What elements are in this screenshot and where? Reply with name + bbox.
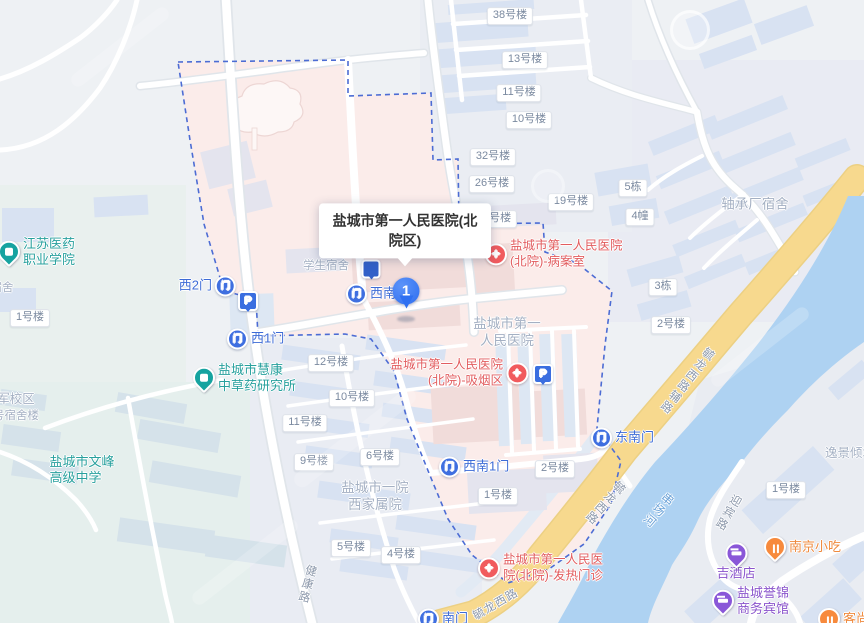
- building-label-13-text: 13号楼: [502, 51, 548, 69]
- building-label-5-text: 5号楼: [331, 539, 371, 557]
- building-label-2e-text: 2号楼: [651, 316, 691, 334]
- gate-west-2-text: 西2门: [179, 278, 212, 294]
- military-campus-label-text: 军校区: [0, 392, 35, 408]
- student-dorm-label-text: 学生宿舍: [303, 259, 349, 273]
- building-label-32-text: 32号楼: [470, 148, 516, 166]
- yujin-business-hotel-text: 盐城誉锦商务宾馆: [737, 585, 789, 618]
- dorm-building-label: 号宿舍楼: [0, 409, 39, 423]
- gate-southwest-1-text: 西南1门: [463, 459, 509, 475]
- building-label-26[interactable]: 26号楼: [469, 175, 515, 193]
- military-campus-label: 军校区: [0, 392, 35, 408]
- building-label-4[interactable]: 4号楼: [381, 546, 421, 564]
- building-label-1h-text: 1号楼: [478, 487, 518, 505]
- hospital-smoking-area-text: 盐城市第一人民医院(北院)-吸烟区: [390, 357, 503, 388]
- building-label-2h[interactable]: 2号楼: [535, 460, 575, 478]
- bearing-factory-dorm-label-text: 轴承厂宿舍: [721, 197, 789, 214]
- jiangsu-medical-college[interactable]: 江苏医药职业学院: [0, 236, 75, 269]
- building-label-d5-text: 5栋: [618, 179, 647, 197]
- gate-icon[interactable]: 门: [418, 609, 439, 623]
- hospital-smoking-area[interactable]: +盐城市第一人民医院(北院)-吸烟区: [390, 357, 528, 388]
- building-label-10n[interactable]: 10号楼: [506, 111, 552, 129]
- building-label-9-text: 9号楼: [294, 453, 334, 471]
- building-label-19[interactable]: 19号楼: [548, 193, 594, 211]
- parking-west[interactable]: P: [238, 291, 258, 311]
- food-icon[interactable]: [759, 531, 790, 562]
- building-label-6-text: 6号楼: [360, 448, 400, 466]
- wenfeng-high-school[interactable]: 盐城市文峰高级中学: [49, 454, 114, 487]
- hosp-icon[interactable]: +: [478, 557, 500, 579]
- huikang-herbal-institute-text: 盐城市慧康中草药研究所: [218, 362, 296, 395]
- building-label-11w[interactable]: 11号楼: [282, 414, 327, 432]
- building-label-26-text: 26号楼: [469, 175, 515, 193]
- building-label-11w-text: 11号楼: [282, 414, 327, 432]
- edu-icon[interactable]: [0, 236, 25, 267]
- hospital-records-room-text: 盐城市第一人民医院(北院)-病案室: [510, 238, 623, 269]
- building-label-9[interactable]: 9号楼: [294, 453, 334, 471]
- building-label-6[interactable]: 6号楼: [360, 448, 400, 466]
- map-canvas[interactable]: 38号楼13号楼11号楼10号楼32号楼26号楼18号楼19号楼5栋4幢3栋2号…: [0, 0, 864, 623]
- building-label-10w[interactable]: 10号楼: [329, 389, 375, 407]
- gate-west-2[interactable]: 门西2门: [179, 276, 236, 297]
- hospital-area-label: 盐城市第一人民医院: [473, 316, 541, 350]
- building-label-1se[interactable]: 1号楼: [766, 481, 806, 499]
- gate-southeast[interactable]: 门东南门: [591, 428, 654, 449]
- map-base-layer: [0, 0, 864, 623]
- gate-south-partial-text: 南门: [442, 611, 468, 623]
- building-label-1w[interactable]: 1号楼: [10, 309, 50, 327]
- building-label-19-text: 19号楼: [548, 193, 594, 211]
- hospital-area-label-text: 盐城市第一人民医院: [473, 316, 541, 350]
- building-label-d3-text: 3栋: [648, 278, 677, 296]
- building-label-10n-text: 10号楼: [506, 111, 552, 129]
- building-label-d3[interactable]: 3栋: [648, 278, 677, 296]
- hospital-fever-clinic[interactable]: +盐城市第一人民医院(北院)-发热门诊: [478, 552, 603, 583]
- gate-icon[interactable]: 门: [591, 428, 612, 449]
- building-label-4-text: 4号楼: [381, 546, 421, 564]
- gate-south-partial[interactable]: 门南门: [418, 609, 468, 623]
- keshang-partial-text: 客尚: [843, 611, 864, 623]
- hospital-fever-clinic-text: 盐城市第一人民医院(北院)-发热门诊: [503, 552, 603, 583]
- ji-hotel[interactable]: 吉酒店: [716, 542, 755, 581]
- marker-number: 1: [402, 283, 410, 300]
- dorm-label-edge-text: 宿舍: [0, 281, 14, 295]
- building-label-d5[interactable]: 5栋: [618, 179, 647, 197]
- hosp-icon[interactable]: +: [506, 362, 528, 384]
- gate-southwest-1[interactable]: 门西南1门: [439, 457, 509, 478]
- huikang-herbal-institute[interactable]: 盐城市慧康中草药研究所: [193, 362, 296, 395]
- park-icon[interactable]: P: [533, 364, 553, 384]
- staff-housing-label-text: 盐城市一院西家属院: [341, 480, 409, 514]
- bearing-factory-dorm-label: 轴承厂宿舍: [721, 197, 789, 214]
- nanjing-snacks-text: 南京小吃: [789, 539, 841, 555]
- pin-icon[interactable]: [362, 260, 381, 279]
- wenfeng-high-school-text: 盐城市文峰高级中学: [49, 454, 114, 487]
- gate-icon[interactable]: 门: [215, 276, 236, 297]
- building-label-2h-text: 2号楼: [535, 460, 575, 478]
- yujin-business-hotel[interactable]: 盐城誉锦商务宾馆: [712, 585, 789, 618]
- gate-icon[interactable]: 门: [346, 284, 367, 305]
- building-label-1h[interactable]: 1号楼: [478, 487, 518, 505]
- building-label-d4[interactable]: 4幢: [625, 208, 654, 226]
- hotel-icon[interactable]: [720, 538, 751, 569]
- hotel-icon[interactable]: [707, 585, 738, 616]
- building-label-12[interactable]: 12号楼: [308, 354, 354, 372]
- building-label-2e[interactable]: 2号楼: [651, 316, 691, 334]
- gate-icon[interactable]: 门: [227, 329, 248, 350]
- parking-hospital[interactable]: P: [533, 364, 553, 384]
- student-dorm-label: 学生宿舍: [303, 259, 349, 273]
- marker-shadow: [397, 316, 415, 322]
- edu-icon[interactable]: [188, 362, 219, 393]
- park-icon[interactable]: P: [238, 291, 258, 311]
- nanjing-snacks[interactable]: 南京小吃: [764, 536, 841, 558]
- dorm-label-edge: 宿舍: [0, 281, 14, 295]
- poi-pin-under-tooltip[interactable]: [362, 260, 381, 279]
- jiangsu-medical-college-text: 江苏医药职业学院: [23, 236, 75, 269]
- gate-west-1[interactable]: 门西1门: [227, 329, 284, 350]
- building-label-38-text: 38号楼: [487, 7, 533, 25]
- building-label-10w-text: 10号楼: [329, 389, 375, 407]
- staff-housing-label: 盐城市一院西家属院: [341, 480, 409, 514]
- info-window[interactable]: 盐城市第一人民医院(北院区): [319, 203, 491, 258]
- keshang-partial[interactable]: 客尚: [818, 608, 864, 623]
- building-label-38[interactable]: 38号楼: [487, 7, 533, 25]
- hospital-records-room[interactable]: +盐城市第一人民医院(北院)-病案室: [485, 238, 623, 269]
- yijing-compound-label-text: 逸景倾城: [825, 446, 864, 462]
- gate-southeast-text: 东南门: [615, 430, 654, 446]
- building-label-11n-text: 11号楼: [496, 84, 541, 102]
- gate-icon[interactable]: 门: [439, 457, 460, 478]
- building-label-1w-text: 1号楼: [10, 309, 50, 327]
- building-label-d4-text: 4幢: [625, 208, 654, 226]
- gate-west-1-text: 西1门: [251, 331, 284, 347]
- building-label-5[interactable]: 5号楼: [331, 539, 371, 557]
- dorm-building-label-text: 号宿舍楼: [0, 409, 39, 423]
- building-label-1se-text: 1号楼: [766, 481, 806, 499]
- building-label-11n[interactable]: 11号楼: [496, 84, 541, 102]
- building-label-32[interactable]: 32号楼: [470, 148, 516, 166]
- info-window-title: 盐城市第一人民医院(北院区): [333, 212, 478, 248]
- yijing-compound-label: 逸景倾城: [825, 446, 864, 462]
- selected-poi-marker-1[interactable]: 1: [393, 278, 420, 305]
- building-label-12-text: 12号楼: [308, 354, 354, 372]
- building-label-13[interactable]: 13号楼: [502, 51, 548, 69]
